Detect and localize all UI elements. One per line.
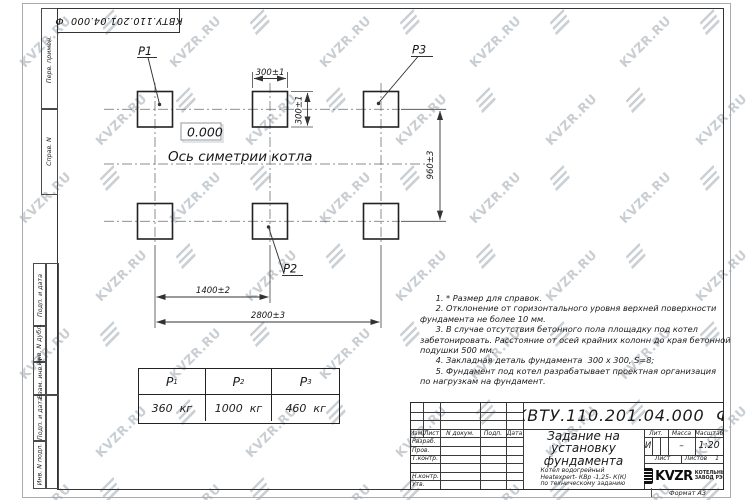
kvzr-logo-caption: КОТЕЛЬНЫЙ ЗАВОД РЭП — [695, 471, 723, 482]
tb-subtitle: Котел водогрейный Heatexpert- КВр -1,25-… — [540, 468, 626, 488]
technical-notes: 1. * Размер для справок. 2. Отклонение о… — [420, 293, 722, 387]
tb-row-utv: Утв. — [412, 480, 440, 489]
loads-value-p1: 360 кг — [139, 395, 206, 421]
leader-p1 — [148, 58, 160, 105]
tb-lit-header: Лит. — [644, 429, 668, 438]
tb-header-data: Дата — [506, 429, 523, 438]
tb-row-prov: Пров. — [412, 446, 440, 455]
loads-value-p3: 460 кг — [272, 395, 339, 421]
elevation-value: 0.000 — [187, 125, 223, 140]
tb-mass-value: – — [668, 437, 695, 454]
tb-title-line: фундамента — [544, 455, 623, 468]
tb-header-izm: Изм. — [411, 429, 423, 438]
tb-sheets-label: Листов — [681, 455, 711, 464]
note-line: 2. Отклонение от горизонтального уровня … — [420, 303, 722, 313]
note-line: забетонировать. Расстояние от осей крайн… — [420, 335, 722, 345]
tb-doc-number: КВТУ.110.201.04.000 Ф — [523, 403, 723, 429]
tb-header-podp: Подп. — [480, 429, 506, 438]
tb-lit-value: И — [644, 437, 652, 454]
tb-sheets-value: 1 — [711, 455, 723, 464]
dim-side-height: 300±1 — [295, 96, 305, 125]
dim-col-spacing: 1400±2 — [196, 286, 230, 296]
note-line: 4. Закладная деталь фундамента 300 х 300… — [420, 355, 722, 365]
leader-dot-p2 — [267, 225, 270, 228]
leader-dot-p1 — [158, 103, 161, 106]
tb-row-blank — [412, 463, 440, 472]
title-block: Изм. Лист N докум. Подп. Дата Разраб. Пр… — [410, 402, 724, 490]
note-line: по нагрузкам на фундамент. — [420, 376, 722, 386]
leader-dot-p3 — [377, 102, 380, 105]
label-p3: P3 — [412, 43, 426, 57]
label-p2: P2 — [283, 262, 297, 276]
company-logo: KVZR КОТЕЛЬНЫЙ ЗАВОД РЭП — [644, 468, 723, 484]
note-line: 5. Фундамент под котел разрабатывает про… — [420, 366, 722, 376]
kvzr-logo-text: KVZR — [655, 469, 693, 484]
note-line: 1. * Размер для справок. — [420, 293, 722, 303]
tb-row-tkontr: Т.контр. — [412, 455, 440, 464]
tb-title-line: установку — [551, 442, 616, 455]
kvzr-logo-icon — [644, 468, 653, 484]
tb-header-list: Лист — [423, 429, 440, 438]
tb-scale-header: Масштаб — [695, 429, 723, 438]
tb-row-razrab: Разраб. — [412, 437, 440, 446]
tb-logo-cell: KVZR КОТЕЛЬНЫЙ ЗАВОД РЭП — [644, 463, 723, 489]
tb-sheet-label: Лист — [644, 455, 681, 464]
note-line: фундамента не более 10 мм. — [420, 314, 722, 324]
loads-header-p2: P2 — [206, 369, 273, 395]
format-label: Формат А3 — [651, 488, 723, 497]
loads-header-p3: P3 — [272, 369, 339, 395]
leader-p2 — [269, 227, 285, 274]
tb-scale-value: 1:20 — [695, 437, 723, 454]
tb-mass-header: Масса — [668, 429, 695, 438]
tb-row-nkontr: Н.контр. — [412, 472, 440, 481]
dim-top-width: 300±1 — [256, 68, 285, 78]
tb-header-ndokum: N докум. — [440, 429, 480, 438]
drawing-sheet: KVZR.RUKVZR.RUKVZR.RUKVZR.RUKVZR.RUKVZR.… — [0, 0, 750, 500]
loads-value-p2: 1000 кг — [206, 395, 273, 421]
label-p1: P1 — [138, 44, 152, 58]
dim-row-spacing: 960±3 — [426, 151, 436, 180]
loads-header-p1: P1 — [139, 369, 206, 395]
loads-table: P1 P2 P3 360 кг 1000 кг 460 кг — [138, 368, 340, 424]
dim-total-width: 2800±3 — [251, 311, 285, 321]
tb-title: Задание на установку фундамента Котел во… — [523, 429, 644, 489]
symmetry-axis-label: Ось симетрии котла — [168, 149, 312, 165]
note-line: 3. В случае отсутствия бетонного пола пл… — [420, 324, 722, 334]
note-line: подушки 500 мм. — [420, 345, 722, 355]
